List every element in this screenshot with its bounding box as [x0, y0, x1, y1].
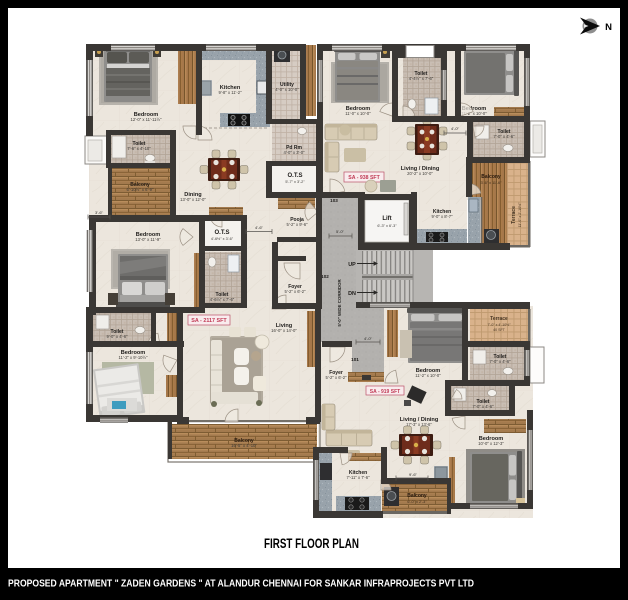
svg-text:N: N: [605, 22, 612, 33]
svg-text:Terrace: Terrace: [490, 316, 508, 322]
svg-text:3'-6" x 11'-6": 3'-6" x 11'-6": [481, 181, 503, 185]
svg-text:O.T.S: O.T.S: [214, 230, 229, 236]
svg-text:9'-6": 9'-6": [409, 472, 418, 477]
svg-text:13'-0" x 11'-9": 13'-0" x 11'-9": [135, 237, 161, 242]
svg-text:SA - 919 SFT: SA - 919 SFT: [370, 389, 400, 395]
svg-text:Balcony: Balcony: [481, 174, 501, 180]
svg-text:4'-6½" x 7'-6": 4'-6½" x 7'-6": [210, 297, 235, 302]
svg-text:PROPOSED APARTMENT " ZADEN GAR: PROPOSED APARTMENT " ZADEN GARDENS " AT …: [8, 579, 474, 590]
svg-text:SA - 938 SFT: SA - 938 SFT: [348, 175, 380, 181]
svg-text:FIRST FLOOR PLAN: FIRST FLOOR PLAN: [264, 536, 359, 551]
svg-text:O.T.S: O.T.S: [287, 173, 302, 179]
svg-text:11'-2" x 9'-10½": 11'-2" x 9'-10½": [119, 355, 148, 360]
svg-text:11'-0" x 10'-0": 11'-0" x 10'-0": [345, 111, 371, 116]
svg-text:5'-2" x 6'-2": 5'-2" x 6'-2": [325, 375, 347, 380]
svg-text:5'-7" x 3'-2": 5'-7" x 3'-2": [285, 180, 305, 184]
svg-text:4'-0" x 3'-0": 4'-0" x 3'-0": [283, 150, 305, 155]
svg-text:4'-0": 4'-0": [451, 126, 460, 131]
svg-text:Balcony: Balcony: [407, 493, 427, 499]
svg-text:5'-0" WIDE CORRIDOR: 5'-0" WIDE CORRIDOR: [337, 279, 342, 327]
svg-text:11'-2" x 10'-0": 11'-2" x 10'-0": [415, 373, 441, 378]
svg-text:7'-0" x 4'-6": 7'-0" x 4'-6": [493, 134, 515, 139]
svg-text:11'-0" x 2'-10½": 11'-0" x 2'-10½": [518, 202, 522, 228]
svg-text:5'-0": 5'-0": [336, 229, 345, 234]
svg-text:4'-4½" x 7'-6": 4'-4½" x 7'-6": [409, 76, 434, 81]
svg-text:SA - 2117 SFT: SA - 2117 SFT: [191, 318, 227, 324]
svg-text:103: 103: [330, 198, 338, 203]
svg-text:7'-0" x 4'-10½": 7'-0" x 4'-10½": [487, 323, 511, 327]
svg-text:9'-0" x 8'-7": 9'-0" x 8'-7": [431, 214, 453, 219]
svg-text:6'-3" x 6'-3": 6'-3" x 6'-3": [377, 224, 397, 228]
svg-text:102: 102: [321, 274, 329, 279]
svg-text:4'-0": 4'-0": [364, 336, 373, 341]
svg-text:3'-6": 3'-6": [95, 210, 104, 215]
svg-text:DN: DN: [348, 291, 356, 297]
svg-text:7'-0" x 4'-6": 7'-0" x 4'-6": [472, 404, 494, 409]
svg-text:7'-6" x 4'-10": 7'-6" x 4'-10": [127, 146, 151, 151]
svg-text:7'-11" x 7'-6": 7'-11" x 7'-6": [346, 475, 370, 480]
svg-text:16'-5" x 4'-10": 16'-5" x 4'-10": [231, 443, 257, 448]
svg-text:13'-0" x 12'-0": 13'-0" x 12'-0": [180, 197, 206, 202]
svg-text:Terrace: Terrace: [511, 206, 517, 224]
svg-text:5'-2" x 9'-6": 5'-2" x 9'-6": [286, 222, 308, 227]
svg-text:20'-2" x 10'-0": 20'-2" x 10'-0": [407, 171, 433, 176]
svg-text:UP: UP: [348, 262, 356, 268]
svg-text:16'-0" x 14'-0": 16'-0" x 14'-0": [271, 328, 297, 333]
svg-text:7'-0" x 4'-6": 7'-0" x 4'-6": [489, 359, 511, 364]
svg-text:10'-0" x 12'-3": 10'-0" x 12'-3": [478, 441, 504, 446]
svg-text:4'-6½" x 3'-6": 4'-6½" x 3'-6": [211, 237, 234, 241]
svg-text:Lift: Lift: [382, 216, 391, 222]
svg-text:40 SFT: 40 SFT: [493, 328, 506, 332]
svg-text:9'-8" x 11'-2": 9'-8" x 11'-2": [218, 90, 242, 95]
svg-text:4'-6": 4'-6": [255, 225, 264, 230]
svg-text:6'-0" x 2'-3": 6'-0" x 2'-3": [407, 500, 427, 504]
svg-text:6'-10½" x 6'-9": 6'-10½" x 6'-9": [127, 187, 154, 192]
svg-text:4'-0" x 10'-0": 4'-0" x 10'-0": [275, 87, 299, 92]
svg-text:5'-2" x 6'-2": 5'-2" x 6'-2": [284, 289, 306, 294]
svg-text:101: 101: [351, 357, 359, 362]
svg-text:9'-0" x 4'-6": 9'-0" x 4'-6": [106, 334, 128, 339]
svg-text:12'-0" x 11'-11½": 12'-0" x 11'-11½": [131, 117, 162, 122]
